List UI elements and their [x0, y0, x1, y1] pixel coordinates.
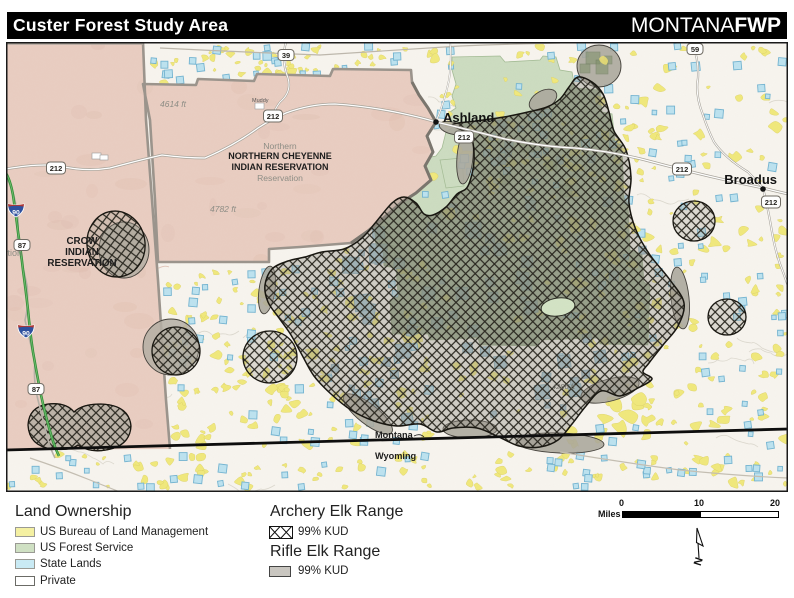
svg-text:N: N: [692, 556, 706, 567]
